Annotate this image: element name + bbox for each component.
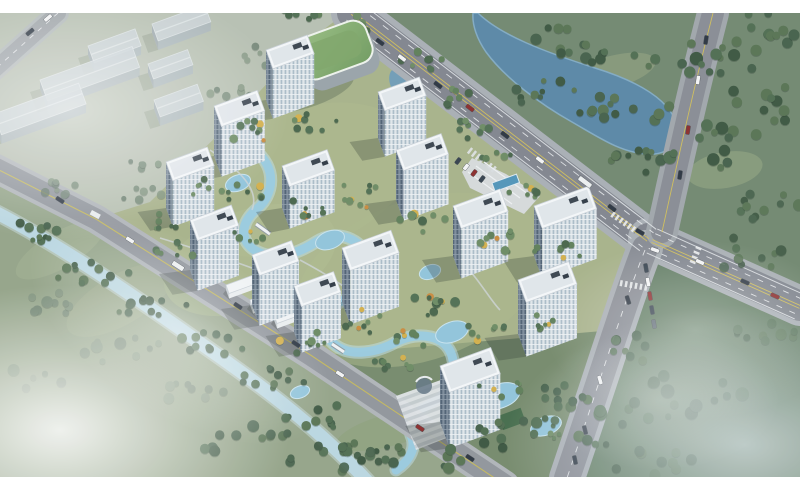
top-white-margin <box>0 0 800 13</box>
aerial-rendering-frame <box>0 0 800 485</box>
residential-masterplan-aerial-rendering <box>0 0 800 485</box>
bottom-white-margin <box>0 477 800 485</box>
atmospheric-haze <box>0 0 800 485</box>
